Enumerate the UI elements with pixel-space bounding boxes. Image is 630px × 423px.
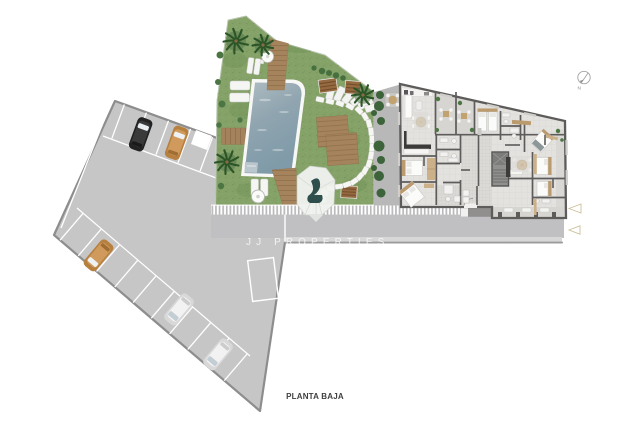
svg-text:JJ PROPERTIES: JJ PROPERTIES — [246, 237, 389, 248]
svg-text:N: N — [578, 86, 582, 92]
svg-text:PLANTA BAJA: PLANTA BAJA — [286, 392, 344, 401]
